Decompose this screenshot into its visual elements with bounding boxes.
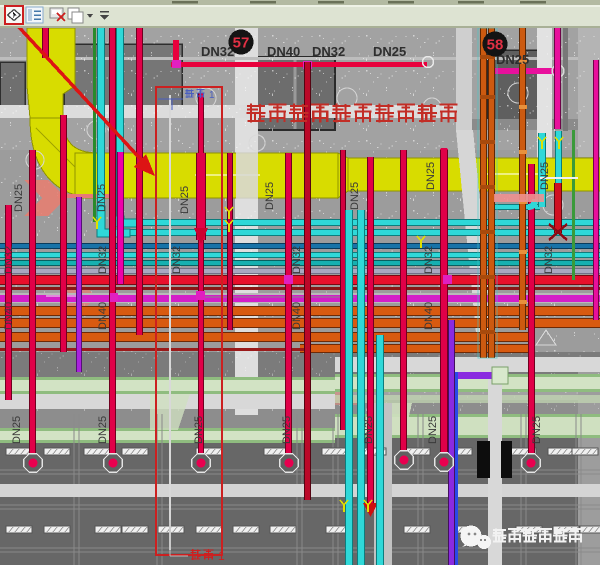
svg-text:DN25: DN25: [11, 416, 23, 444]
svg-text:DN25: DN25: [425, 162, 437, 190]
svg-text:DN25: DN25: [13, 184, 25, 212]
svg-text:DN40: DN40: [3, 302, 15, 330]
svg-text:DN25: DN25: [539, 162, 551, 190]
svg-text:DN25: DN25: [531, 416, 543, 444]
svg-text:DN32: DN32: [312, 44, 345, 59]
svg-text:57: 57: [233, 35, 250, 52]
svg-text:DN25: DN25: [179, 186, 191, 214]
svg-text:DN32: DN32: [423, 246, 435, 274]
svg-text:1: 1: [209, 90, 215, 101]
svg-text:DN40: DN40: [291, 302, 303, 330]
svg-text:DN40: DN40: [97, 302, 109, 330]
svg-text:DN25: DN25: [97, 416, 109, 444]
svg-text:DN32: DN32: [3, 246, 15, 274]
svg-text:DN25: DN25: [281, 416, 293, 444]
svg-text:DN25: DN25: [193, 416, 205, 444]
svg-text:DN40: DN40: [423, 302, 435, 330]
svg-text:DN25: DN25: [363, 416, 375, 444]
svg-text:DN32: DN32: [543, 246, 555, 274]
svg-text:1: 1: [218, 549, 225, 563]
svg-text:DN32: DN32: [97, 246, 109, 274]
svg-text:DN40: DN40: [267, 44, 300, 59]
svg-text:DN25: DN25: [96, 184, 108, 212]
svg-text:58: 58: [487, 37, 504, 54]
svg-text:DN25: DN25: [427, 416, 439, 444]
svg-text:DN25: DN25: [373, 44, 406, 59]
svg-text:DN25: DN25: [349, 182, 361, 210]
svg-text:DN32: DN32: [171, 246, 183, 274]
svg-text:DN25: DN25: [264, 182, 276, 210]
svg-text:DN32: DN32: [291, 246, 303, 274]
